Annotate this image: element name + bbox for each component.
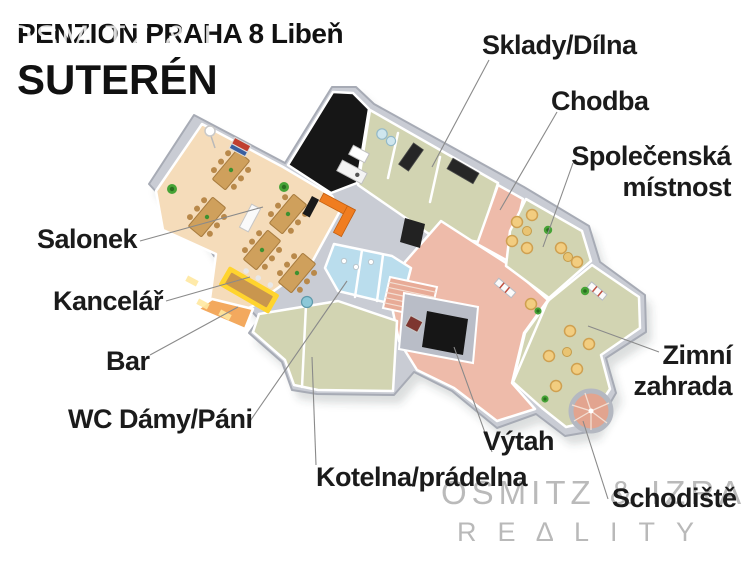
floorplan-page: OSMITZ & IZRA RE∆LITY PENZION PRAHA 8 Li… [0,0,749,562]
room-label-kotelna: Kotelna/prádelna [316,462,527,493]
leader-bar [150,307,238,355]
watermark-top-overlay: OSMITZ & IZRA [6,19,214,58]
room-label-vytah: Výtah [483,426,554,457]
plant [581,287,589,295]
room-label-kancelar: Kancelář [53,286,163,317]
plant [534,307,541,314]
room-label-salonek: Salonek [37,224,137,255]
plant [279,182,289,192]
watermark-tagline: RE∆LITY [457,517,715,548]
room-kotelna [253,301,397,391]
room-label-schodiste: Schodiště [612,483,737,514]
room-label-chodba: Chodba [551,86,649,117]
plant [541,395,548,402]
room-label-sklady: Sklady/Dílna [482,30,637,61]
room-label-zimni: Zimní zahrada [617,340,732,403]
spiral-staircase [571,391,611,431]
room-label-wc: WC Dámy/Páni [68,404,253,435]
room-label-spolecenska: Společenská místnost [556,141,731,204]
plant [167,184,177,194]
room-label-bar: Bar [106,346,150,377]
page-subtitle: SUTERÉN [17,56,218,104]
